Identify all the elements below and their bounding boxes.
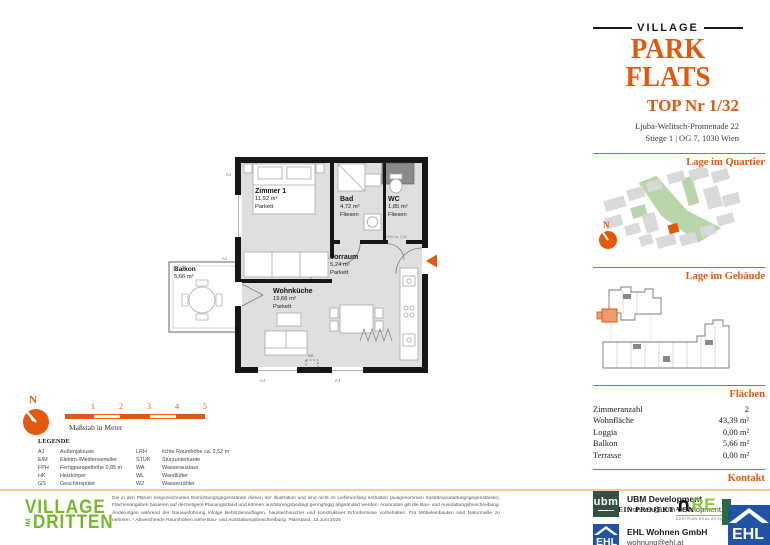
legend-item: HKHeizkörper (38, 472, 122, 480)
brand-rule-right (704, 27, 743, 29)
svg-text:AJ: AJ (335, 378, 340, 383)
ehl-logo: EHL (593, 524, 619, 545)
gebaeude-map-graphic (593, 282, 758, 372)
brand-block: VILLAGE PARK FLATS TOP Nr 1/32 Ljuba-Wel… (593, 22, 743, 145)
address-line2: Stiege 1 | OG 7, 1030 Wien (593, 133, 743, 145)
floor-plan-graphic: AJ AJ AJ AJ WL LRH ca. 2,52 (160, 148, 445, 393)
table-row: Loggia 0,00 m² (593, 427, 765, 439)
row-label: Zimmeranzahl (593, 404, 643, 416)
footer-separator (0, 489, 770, 491)
legend-item: FPHFertigparapethöhe 0,85 m (38, 464, 122, 472)
row-label: Balkon (593, 438, 618, 450)
room-label-wohnkueche: Wohnküche 19,66 m² Parkett (273, 288, 313, 312)
ubm-logo-text: ubm (594, 497, 619, 508)
unit-title: TOP Nr 1/32 (593, 96, 743, 116)
balcony-table (189, 287, 215, 313)
plan-sheet-page: VILLAGE PARK FLATS TOP Nr 1/32 Ljuba-Wel… (0, 0, 770, 545)
gebaeude-map (593, 282, 758, 377)
brand-parkflats-label: PARK FLATS (593, 35, 743, 92)
row-value: 0,00 m² (723, 450, 765, 462)
room-label-wc: WC 1,85 m² Fliesen (388, 196, 408, 220)
section-title-kontakt: Kontakt (593, 473, 765, 484)
room-label-bad: Bad 4,72 m² Fliesen (340, 196, 360, 220)
legend-item: WLWandlüfter (136, 472, 229, 480)
floor-plan: AJ AJ AJ AJ WL LRH ca. 2,52 Zimmer 1 11,… (160, 148, 445, 393)
ehl-roof-icon (729, 508, 769, 523)
brand-rule-left (593, 27, 632, 29)
row-value: 43,39 m² (719, 415, 765, 427)
table-row: Balkon 5,66 m² (593, 438, 765, 450)
legend-title: LEGENDE (38, 438, 368, 445)
separator (593, 469, 765, 470)
legend-item: LRHlichte Raumhöhe ca. 2,52 m (136, 448, 229, 456)
room-label-balkon: Balkon 5,66 m² (174, 266, 196, 282)
compass: N (12, 392, 62, 444)
ubm-logo-rule (598, 510, 614, 511)
disclaimer-text: Die in den Plänen eingezeichneten Einric… (112, 495, 500, 524)
ehl-name: EHL Wohnen GmbH (627, 527, 707, 538)
scale-bar-ticks: 1 2 3 4 5 (65, 402, 205, 412)
legend-item: GSGeschirrspüler (38, 480, 122, 488)
quartier-compass-label: N (603, 220, 610, 230)
ehl-roof-icon (594, 526, 618, 535)
legend-item: WZWasserzähler (136, 480, 229, 488)
legend-item: WAWasserauslass (136, 464, 229, 472)
washbasin (365, 174, 381, 186)
svg-text:LRH ca. 2,52: LRH ca. 2,52 (386, 235, 407, 239)
separator (593, 385, 765, 386)
row-value: 2 (745, 404, 765, 416)
ehl-email[interactable]: wohnung@ehl.at (627, 538, 707, 545)
separator (593, 267, 765, 268)
svg-text:AJ: AJ (226, 172, 231, 177)
toilet (390, 174, 402, 179)
legend-item: STUKSturzunterkante (136, 456, 229, 464)
ehl-footer-logo-text: EHL (732, 526, 764, 543)
ehl-logo-text: EHL (596, 536, 618, 545)
address-line1: Ljuba-Welitsch-Promenade 22 (593, 121, 743, 133)
compass-label: N (29, 394, 37, 406)
legend-column-left: AJAußenjalousie E/MElektro-/Medienvertei… (38, 448, 122, 488)
table-row: Zimmeranzahl 2 (593, 404, 765, 416)
legend-item: E/MElektro-/Medienverteiler (38, 456, 122, 464)
quartier-map-graphic: N (593, 168, 758, 254)
scale-bar: 1 2 3 4 5 Maßstab in Meter (65, 402, 205, 432)
ehl-footer-logo: EHL (722, 497, 770, 545)
area-table: Zimmeranzahl 2 Wohnfläche 43,39 m² Loggi… (593, 404, 765, 462)
row-value: 5,66 m² (723, 438, 765, 450)
sidebar: VILLAGE PARK FLATS TOP Nr 1/32 Ljuba-Wel… (593, 14, 765, 545)
highlighted-unit (602, 309, 617, 322)
legend: LEGENDE AJAußenjalousie E/MElektro-/Medi… (38, 438, 368, 488)
row-label: Loggia (593, 427, 617, 439)
wardrobe (244, 252, 328, 277)
row-value: 0,00 m² (723, 427, 765, 439)
svg-text:WL: WL (308, 353, 315, 358)
row-label: Terrasse (593, 450, 621, 462)
scale-bar-segments (65, 414, 205, 419)
legend-column-right: LRHlichte Raumhöhe ca. 2,52 m STUKSturzu… (136, 448, 229, 488)
village-im-dritten-logo: VILLAGE IM DRITTEN (25, 499, 114, 530)
are-arc-icon: ∩ (676, 497, 691, 513)
table-row: Wohnfläche 43,39 m² (593, 415, 765, 427)
coffee-table (277, 313, 301, 326)
are-logo: ∩ RE AUSTRIAN REAL ESTATE (676, 496, 727, 521)
legend-item: AJAußenjalousie (38, 448, 122, 456)
svg-text:AJ: AJ (222, 256, 227, 261)
section-title-flaechen: Flächen (593, 389, 765, 400)
room-label-vorraum: Vorraum 5,24 m² Parkett (330, 254, 358, 278)
table-row: Terrasse 0,00 m² (593, 450, 765, 462)
room-label-zimmer1: Zimmer 1 11,92 m² Parkett (255, 188, 286, 212)
ubm-logo: ubm (593, 491, 619, 517)
quartier-map: N (593, 168, 758, 259)
svg-text:AJ: AJ (260, 378, 265, 383)
dining-table (340, 305, 373, 333)
separator (593, 153, 765, 154)
section-title-gebaeude: Lage im Gebäude (593, 271, 765, 282)
logo-im: IM (26, 517, 32, 526)
section-title-quartier: Lage im Quartier (593, 157, 765, 168)
row-label: Wohnfläche (593, 415, 634, 427)
scale-bar-caption: Maßstab in Meter (69, 423, 205, 432)
